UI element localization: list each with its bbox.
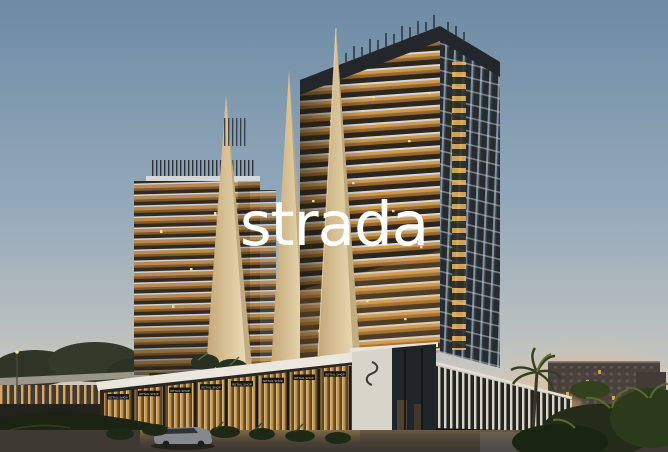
watermark-text: strada	[0, 194, 668, 255]
retail-sign-label: RETAIL SHOP	[263, 379, 283, 383]
retail-sign-label: RETAIL SHOP	[139, 392, 159, 396]
retail-sign-label: RETAIL SHOP	[325, 373, 345, 377]
entrance-block	[350, 342, 438, 444]
retail-sign-label: RETAIL SHOP	[232, 382, 252, 386]
retail-sign-label: RETAIL SHOP	[170, 389, 190, 393]
retail-sign-label: RETAIL SHOP	[294, 376, 314, 380]
street-lamp-light	[15, 350, 19, 354]
listing-photo: RETAIL SHOP RETAIL SHOP RETAIL SHOP RETA…	[0, 0, 668, 452]
retail-sign-label: RETAIL SHOP	[108, 395, 128, 399]
left-tower-roof-slab	[146, 176, 260, 181]
left-tower-roof-slats	[150, 160, 256, 177]
retail-sign-label: RETAIL SHOP	[201, 386, 221, 390]
